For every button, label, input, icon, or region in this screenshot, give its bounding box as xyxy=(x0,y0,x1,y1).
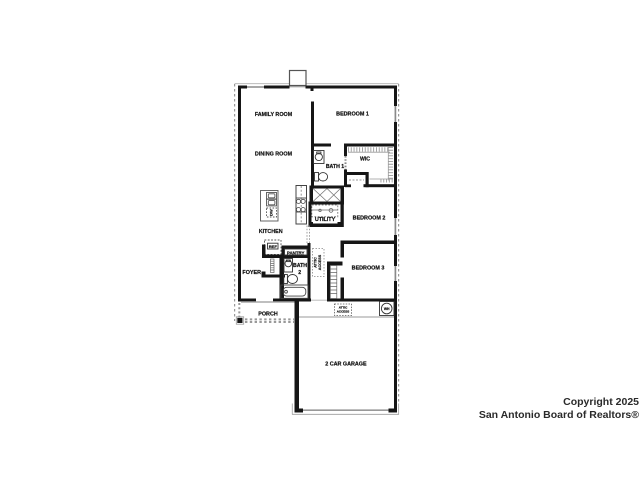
svg-text:ATTICACCESS: ATTICACCESS xyxy=(314,254,323,270)
svg-text:REF: REF xyxy=(269,244,278,249)
svg-text:BEDROOM 2: BEDROOM 2 xyxy=(353,215,386,221)
svg-text:PANTRY: PANTRY xyxy=(287,250,305,255)
svg-text:BEDROOM 1: BEDROOM 1 xyxy=(336,112,369,118)
svg-text:2 CAR GARAGE: 2 CAR GARAGE xyxy=(325,362,367,368)
svg-text:BATH: BATH xyxy=(293,263,307,269)
svg-text:WIC: WIC xyxy=(360,157,370,163)
svg-text:DINING ROOM: DINING ROOM xyxy=(255,152,293,158)
svg-text:FAMILY ROOM: FAMILY ROOM xyxy=(255,112,293,118)
svg-text:PORCH: PORCH xyxy=(258,312,278,318)
svg-text:2: 2 xyxy=(298,270,301,276)
svg-text:BATH 1: BATH 1 xyxy=(326,164,344,170)
svg-text:BEDROOM 3: BEDROOM 3 xyxy=(352,265,385,271)
svg-text:KITCHEN: KITCHEN xyxy=(259,229,283,235)
svg-text:DW: DW xyxy=(269,209,274,216)
svg-text:WH: WH xyxy=(384,307,390,311)
svg-text:UTILITY: UTILITY xyxy=(315,217,336,223)
svg-text:ACCESS: ACCESS xyxy=(337,310,350,314)
svg-text:FOYER: FOYER xyxy=(242,270,261,276)
